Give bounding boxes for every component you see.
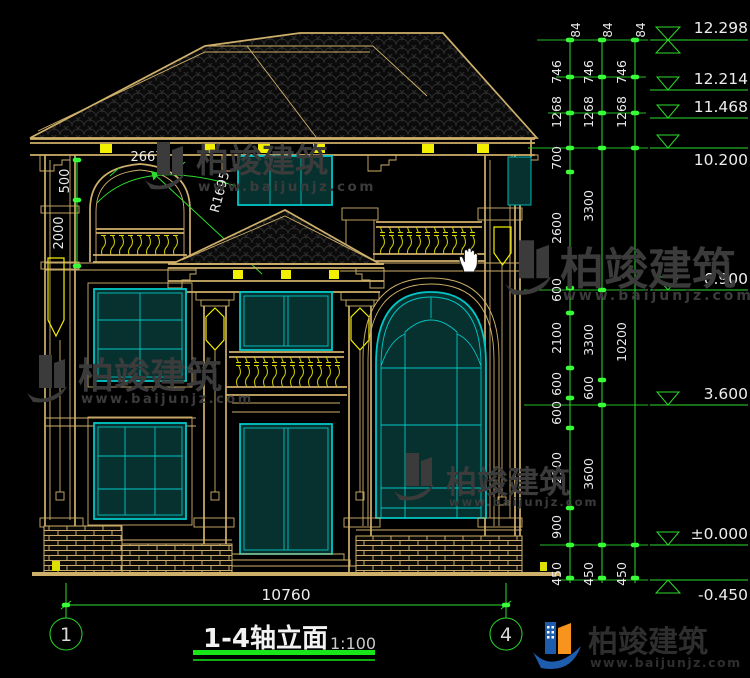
grid-bubble-4-label: 4 bbox=[500, 624, 512, 646]
elevation-label: -0.450 bbox=[698, 586, 748, 604]
dim-label: 84 bbox=[601, 22, 615, 37]
cad-viewport[interactable]: 84 746 1268 700 2600 600 2100 600 600 21… bbox=[0, 0, 750, 678]
porch-column-left bbox=[196, 292, 234, 572]
balcony-balustrade bbox=[233, 357, 340, 387]
brand-logo-url: www.baijunjz.com bbox=[590, 655, 742, 670]
title-block: 1-4轴立面 1:100 bbox=[193, 623, 376, 660]
watermark-name: 柏竣建筑 bbox=[196, 141, 328, 180]
dim-label: 746 bbox=[549, 60, 564, 84]
arch-opening bbox=[90, 164, 190, 262]
dim-label: 600 bbox=[549, 372, 564, 396]
elevation-drawing-canvas: 84 746 1268 700 2600 600 2100 600 600 21… bbox=[0, 0, 750, 678]
main-roof bbox=[30, 33, 537, 138]
dim-label: 3300 bbox=[581, 324, 596, 356]
dim-label: 1268 bbox=[549, 96, 564, 128]
arch-balustrade bbox=[99, 233, 181, 255]
grid-bubble-1-label: 1 bbox=[60, 624, 72, 646]
shield-ornament bbox=[206, 308, 224, 350]
watermark-name: 柏竣建筑 bbox=[78, 356, 222, 397]
watermark: 柏竣建筑 www.baijunjz.com bbox=[27, 355, 254, 407]
arch-height-label: 2000 bbox=[52, 216, 67, 249]
dim-label: 700 bbox=[549, 146, 564, 170]
terrace-balustrade bbox=[380, 227, 478, 254]
elevation-label: 12.298 bbox=[694, 19, 748, 37]
left-window-1f bbox=[88, 417, 192, 525]
door-steps bbox=[216, 554, 356, 573]
brand-logo: 柏竣建筑 www.baijunjz.com bbox=[533, 622, 742, 670]
dim-label: 84 bbox=[569, 22, 583, 37]
watermark-url: www.baijunjz.com bbox=[81, 392, 254, 407]
dim-label: 900 bbox=[549, 515, 564, 539]
elevation-label: 12.214 bbox=[694, 70, 748, 88]
dim-label: 450 bbox=[581, 562, 596, 586]
dim-label: 450 bbox=[614, 562, 629, 586]
shield-ornament bbox=[351, 308, 369, 350]
porch-window bbox=[240, 292, 332, 350]
dim-label: 1268 bbox=[581, 96, 596, 128]
elevation-markers: 12.298 12.214 11.468 10.200 6.900 3.600 … bbox=[650, 19, 748, 604]
dim-label: 2600 bbox=[549, 212, 564, 244]
brand-logo-mark bbox=[533, 622, 581, 669]
watermark: 柏竣建筑 www.baijunjz.com bbox=[505, 240, 750, 304]
ground-line bbox=[32, 572, 560, 576]
dim-label: 450 bbox=[549, 562, 564, 586]
dim-label: 3600 bbox=[581, 458, 596, 490]
dim-labels-col3: 84 746 1268 10200 450 bbox=[614, 22, 648, 586]
watermark-url: www.baijunjz.com bbox=[198, 179, 376, 195]
dim-label: 84 bbox=[634, 22, 648, 37]
overall-width-label: 10760 bbox=[261, 586, 310, 604]
elevation-label: 11.468 bbox=[694, 98, 748, 116]
dim-label: 746 bbox=[614, 60, 629, 84]
dim-label: 1268 bbox=[614, 96, 629, 128]
elevation-label: ±0.000 bbox=[691, 525, 748, 543]
dim-label: 746 bbox=[581, 60, 596, 84]
watermark: 柏竣建筑 www.baijunjz.com bbox=[145, 141, 376, 195]
title-underline bbox=[193, 650, 375, 655]
watermark-url: www.baijunjz.com bbox=[449, 495, 598, 509]
dim-label: 10200 bbox=[614, 322, 629, 362]
watermark-url: www.baijunjz.com bbox=[563, 288, 750, 304]
dim-label: 2100 bbox=[549, 322, 564, 354]
porch-roof bbox=[168, 210, 384, 292]
drawing-title: 1-4轴立面 bbox=[203, 623, 328, 654]
elevation-label: 3.600 bbox=[704, 385, 748, 403]
shield-ornament bbox=[494, 227, 511, 265]
entry-door bbox=[216, 424, 356, 573]
dim-label: 3300 bbox=[581, 190, 596, 222]
elevation-label: 10.200 bbox=[694, 151, 748, 169]
arch-offset-label: 500 bbox=[58, 169, 73, 194]
dim-label: 600 bbox=[549, 401, 564, 425]
dim-label: 600 bbox=[581, 376, 596, 400]
